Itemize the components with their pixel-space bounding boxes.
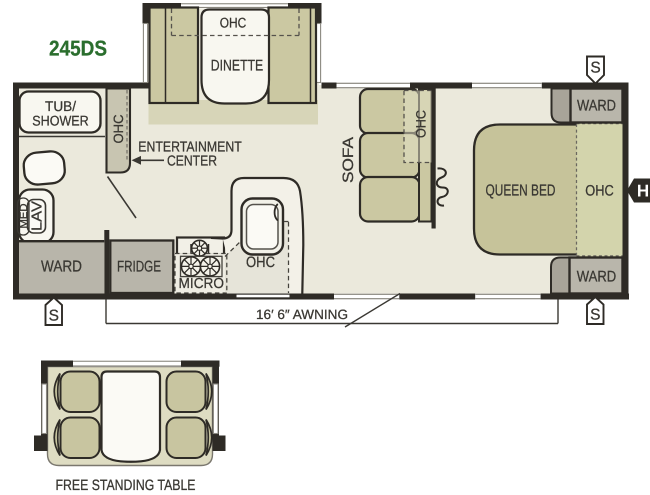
svg-text:MICRO: MICRO	[179, 276, 225, 292]
svg-text:245DS: 245DS	[49, 37, 107, 61]
svg-text:LAV: LAV	[30, 201, 46, 231]
svg-text:CENTER: CENTER	[167, 154, 217, 170]
svg-text:WARD: WARD	[577, 98, 616, 115]
svg-text:SHOWER: SHOWER	[32, 113, 89, 129]
svg-text:FRIDGE: FRIDGE	[117, 259, 161, 276]
svg-text:OHC: OHC	[246, 254, 275, 271]
svg-text:S: S	[49, 308, 59, 325]
svg-text:S: S	[590, 307, 600, 324]
svg-text:DINETTE: DINETTE	[211, 58, 264, 75]
svg-text:WARD: WARD	[41, 259, 82, 276]
svg-text:QUEEN BED: QUEEN BED	[486, 183, 556, 200]
svg-text:16′ 6″ AWNING: 16′ 6″ AWNING	[256, 307, 348, 322]
svg-text:OHC: OHC	[585, 183, 614, 200]
svg-text:FREE STANDING TABLE: FREE STANDING TABLE	[56, 477, 196, 494]
svg-text:MED: MED	[18, 203, 30, 228]
svg-text:OHC: OHC	[111, 114, 126, 143]
svg-text:S: S	[590, 60, 600, 77]
svg-text:SOFA: SOFA	[340, 137, 357, 183]
svg-text:H: H	[637, 182, 649, 201]
svg-text:WARD: WARD	[577, 269, 617, 286]
svg-text:OHC: OHC	[220, 15, 247, 31]
svg-text:OHC: OHC	[414, 110, 429, 138]
